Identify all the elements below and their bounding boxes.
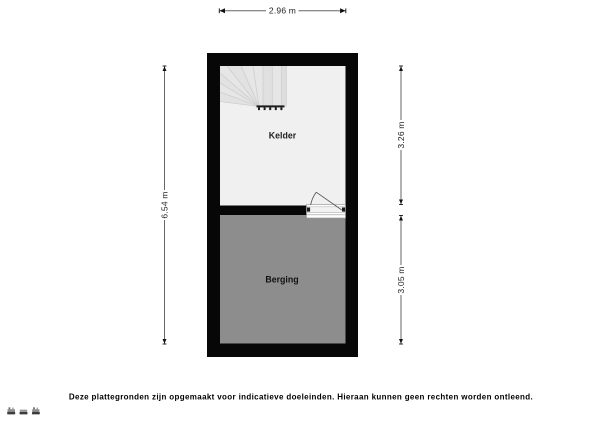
svg-text:3.05 m: 3.05 m xyxy=(396,266,406,293)
svg-text:Berging: Berging xyxy=(265,275,298,285)
svg-text:6.54 m: 6.54 m xyxy=(159,191,169,218)
svg-text:Deze plattegronden zijn opgema: Deze plattegronden zijn opgemaakt voor i… xyxy=(69,393,533,402)
svg-text:3.26 m: 3.26 m xyxy=(396,121,406,148)
svg-text:2.96 m: 2.96 m xyxy=(269,6,296,16)
svg-text:Kelder: Kelder xyxy=(269,131,297,141)
